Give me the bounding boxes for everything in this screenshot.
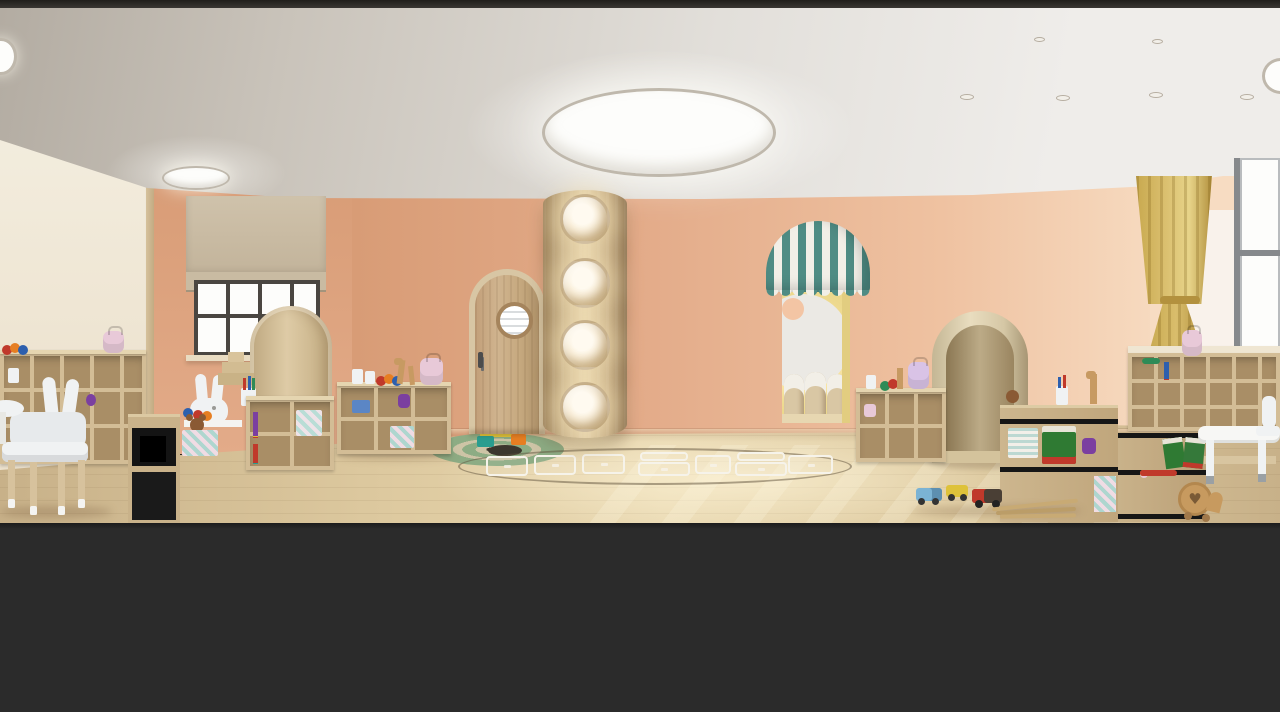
column-light-1 xyxy=(560,194,610,244)
chair-leg xyxy=(78,460,85,508)
pencil-cup xyxy=(365,371,375,384)
truck-wheel xyxy=(918,498,925,505)
giraffe-head xyxy=(394,358,403,365)
cabinet-opening xyxy=(140,436,166,462)
recessed-spotlight xyxy=(1034,37,1045,42)
hopscotch-cell xyxy=(788,455,833,474)
door-porthole-window xyxy=(496,302,533,339)
chair-leg xyxy=(30,462,37,515)
white-chair-seat xyxy=(1256,426,1280,436)
recessed-spotlight xyxy=(1056,95,1070,101)
top-letterbox-bar xyxy=(0,0,1280,8)
toy-ball-purple xyxy=(86,394,96,406)
pencil-cup xyxy=(866,375,876,389)
teddy-bear-head xyxy=(1006,390,1019,403)
nook-side-wall xyxy=(842,290,850,423)
door-handle xyxy=(478,352,483,368)
hopscotch-cell xyxy=(640,452,688,461)
cabinet-black-panel xyxy=(132,472,176,520)
table-leg xyxy=(0,412,6,444)
cubby-wall-right xyxy=(1128,353,1280,431)
hopscotch-cell xyxy=(486,456,528,476)
chair-shadow xyxy=(0,506,112,518)
picture-book-green xyxy=(1042,426,1076,464)
bottom-letterbox-bar xyxy=(0,523,1280,712)
hopscotch-cell xyxy=(737,452,785,461)
teddy-ear xyxy=(199,414,206,421)
curtain-tieback xyxy=(1160,296,1200,304)
yellow-curtain-upper xyxy=(1136,176,1212,304)
lilac-backpack xyxy=(908,362,929,389)
snail-wheel xyxy=(1202,514,1210,522)
teddy-ear xyxy=(186,414,193,421)
toy-purple xyxy=(1082,438,1096,454)
mosaic-toy-box xyxy=(390,426,414,448)
giraffe-head xyxy=(1086,371,1096,379)
table-leg xyxy=(1206,440,1214,484)
hopscotch-cell xyxy=(534,455,576,475)
snail-wheel xyxy=(1184,512,1192,520)
chair-leg xyxy=(58,462,65,515)
recessed-spotlight xyxy=(1240,94,1254,100)
pencil xyxy=(252,378,255,390)
recessed-spotlight xyxy=(1149,92,1163,98)
kindergarten-room-render: ♥ xyxy=(0,0,1280,712)
shelf-top-edge xyxy=(246,396,334,400)
reading-nook-doorway xyxy=(782,290,850,423)
block-castle-top xyxy=(228,352,244,362)
pencil-cup xyxy=(8,368,19,383)
recessed-spotlight xyxy=(960,94,974,100)
toy-purple xyxy=(398,394,410,408)
hopscotch-cell xyxy=(695,455,731,474)
picture-book-green xyxy=(1182,437,1205,469)
recessed-spotlight xyxy=(1152,39,1163,44)
pencil xyxy=(1058,377,1061,388)
mosaic-toy-box xyxy=(1094,476,1116,512)
nook-peach-circle xyxy=(782,298,804,320)
pencil-cup xyxy=(352,369,363,384)
table-leg xyxy=(1258,440,1266,482)
hopscotch-cell xyxy=(638,462,690,476)
hopscotch-cell xyxy=(735,462,787,476)
bunny-cutout-eye xyxy=(212,406,216,410)
toy-shelf-right-a xyxy=(856,390,946,462)
toy-pink xyxy=(864,404,876,417)
pencil xyxy=(243,378,246,390)
door-shadow xyxy=(469,430,545,436)
pencil-cup xyxy=(1056,386,1068,405)
shelf-black-edge xyxy=(1000,419,1118,424)
right-window-mullion xyxy=(1240,250,1280,256)
pink-backpack-on-sill xyxy=(1182,330,1202,356)
pink-backpack xyxy=(103,331,124,353)
truck-wheel xyxy=(948,494,955,501)
large-round-ceiling-light xyxy=(542,88,776,177)
column-light-3 xyxy=(560,320,610,370)
roman-shade xyxy=(186,196,326,278)
white-chair-back xyxy=(1262,396,1276,428)
toy-block-teal xyxy=(477,436,494,447)
bunny-chair-seat xyxy=(2,442,88,462)
awning-scallops xyxy=(766,290,870,301)
column-light-2 xyxy=(560,258,610,308)
wood-snail-shell: ♥ xyxy=(1178,482,1212,516)
hopscotch-cell xyxy=(582,454,625,474)
pencil xyxy=(248,376,251,390)
truck-wheel xyxy=(932,498,939,505)
arched-door xyxy=(475,275,539,434)
small-round-ceiling-light xyxy=(162,166,230,190)
teddy-toy-box xyxy=(182,430,218,456)
nook-floor xyxy=(782,414,850,423)
mosaic-toy-box xyxy=(296,410,322,436)
bead-toy xyxy=(18,345,28,355)
shelf-black-edge xyxy=(1000,467,1118,472)
truck-wheel xyxy=(975,500,983,508)
giraffe-figure xyxy=(897,368,903,389)
block-castle-mid xyxy=(222,362,250,373)
truck-wheel xyxy=(960,494,967,501)
right-window xyxy=(1234,158,1280,358)
window-ledge xyxy=(1128,346,1280,353)
polka-toy-box xyxy=(1008,428,1038,458)
column-light-4 xyxy=(560,382,610,432)
toy-bin-blue xyxy=(352,400,370,413)
chair-leg xyxy=(8,460,15,508)
window-mullion xyxy=(226,282,230,354)
pink-backpack xyxy=(420,358,443,385)
pencil xyxy=(1063,375,1066,388)
